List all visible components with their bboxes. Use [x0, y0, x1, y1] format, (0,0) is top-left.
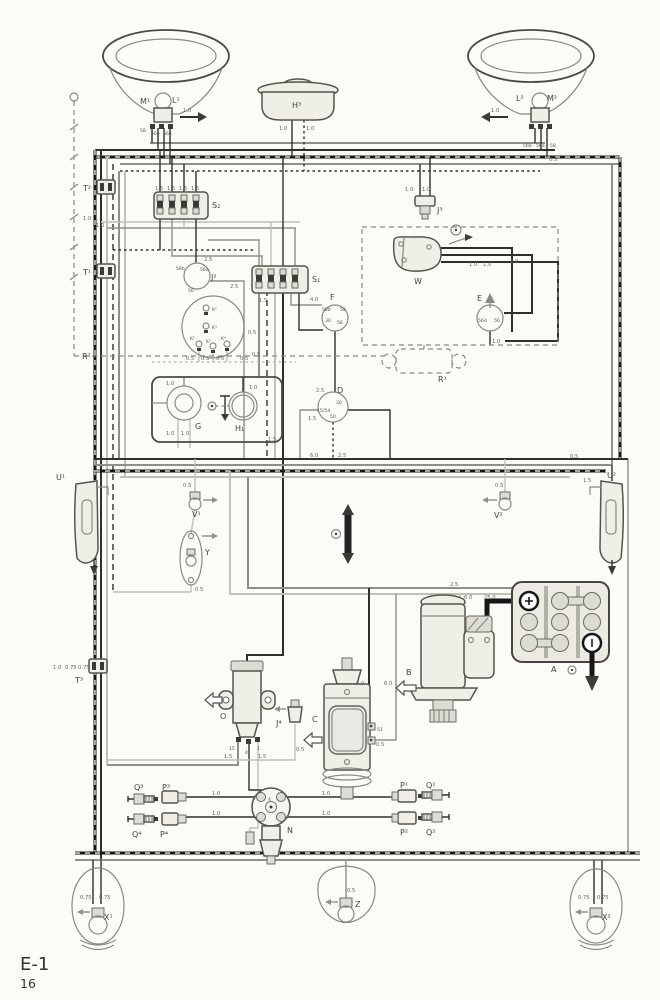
wire-gauge-label: 0.5 — [376, 742, 384, 748]
oil-pressure-sender-j4: J⁴ — [274, 700, 302, 728]
component-label: U² — [607, 471, 616, 480]
wire-gauge-label: 6.0 — [464, 595, 472, 601]
arrow-icon — [465, 234, 473, 241]
wire-gauge-label: 2.5 — [338, 453, 346, 459]
wire-gauge-label: 1.0 — [405, 187, 413, 193]
wire-gauge-label: 1.0 — [322, 791, 330, 797]
wire-gauge-label: 1.0 — [483, 262, 491, 268]
terminal-label: 58 — [340, 307, 346, 313]
terminal-label: 15 — [229, 746, 235, 752]
component-label: V¹ — [192, 510, 201, 519]
starter-b: B — [396, 595, 494, 722]
ignition-coil-o: O — [205, 661, 275, 744]
wire-gauge-label: 0.5 — [186, 356, 194, 362]
component-label: U¹ — [56, 473, 65, 482]
fuel-gauge-g: G — [152, 386, 201, 431]
antenna-r2: R² — [70, 93, 91, 361]
wire-gauge-label: 0.5 — [240, 356, 248, 362]
connector-t3: T³ — [74, 659, 107, 685]
page-number: 16 — [20, 976, 36, 991]
wire-gauge-label: 1.0 — [96, 223, 104, 229]
wire-gauge-label: 1.0 — [306, 126, 314, 132]
component-label: D — [337, 386, 343, 395]
wire-gauge-label: 6.0 — [356, 681, 364, 687]
wire-gauge-label: 1.5 — [258, 754, 266, 760]
wiper-motor-w: W — [362, 225, 558, 345]
headlight-right: L² M² — [468, 30, 594, 129]
ground-arrow-icon — [90, 566, 98, 575]
wire-gauge-label: 0.5 — [201, 356, 209, 362]
component-label: S₂ — [212, 201, 220, 210]
ground-arrow-icon — [585, 676, 599, 691]
component-label: H₁ — [235, 424, 244, 433]
tail-light-x1: X¹ — [72, 868, 124, 950]
arrow-right-icon — [212, 533, 218, 539]
wire-gauge-label: 1.5 — [268, 437, 276, 443]
wire-gauge-label: 1.0 — [491, 108, 499, 114]
terminal-label: 50 — [330, 414, 336, 420]
wire-gauge-label: 1.5 — [155, 186, 163, 192]
component-label: J³ — [436, 206, 443, 215]
component-label: P¹ — [400, 781, 408, 790]
wire-gauge-label: 0.5 — [252, 352, 260, 358]
wire-gauge-label: 0.5 — [248, 330, 256, 336]
bulb-v2: V² — [482, 492, 511, 520]
wire-gauge-label: 1.0 — [249, 385, 257, 391]
component-label: Q³ — [134, 783, 144, 792]
bulb-v1: V¹ — [189, 492, 218, 519]
wire-gauge-label: 1.0 — [422, 187, 430, 193]
wire-gauge-label: 4.0 — [310, 297, 318, 303]
dimmer-relay-j2: J² — [184, 263, 217, 289]
diagram-canvas: M¹ L¹ L² M² H³ R² R¹ T² — [0, 0, 660, 1000]
page-code: E-1 — [20, 954, 49, 975]
wire-gauge-label: 0.75 — [65, 665, 77, 671]
component-label: K² — [190, 336, 195, 342]
component-label: F — [330, 293, 335, 302]
page-label: E-1 16 — [20, 954, 49, 991]
wire-gauge-label: 1.0 — [166, 381, 174, 387]
component-label: L¹ — [172, 96, 180, 105]
wire-gauge-label: 0.5 — [195, 587, 203, 593]
component-label: K³ — [212, 325, 217, 331]
component-label: S₁ — [312, 275, 320, 284]
wire-gauge-label: 0.75 — [578, 895, 590, 901]
terminal-label: 58 — [140, 128, 146, 134]
wire-gauge-label: 0.5 — [183, 483, 191, 489]
arrow-right-icon — [212, 497, 218, 503]
wire-gauge-label: 25.0 — [484, 595, 496, 601]
component-label: X² — [602, 913, 611, 922]
wire-gauge-label: 1.0 — [166, 431, 174, 437]
sender-j3: J³ — [415, 196, 443, 219]
component-label: P⁴ — [160, 830, 168, 839]
terminal-label: 1 — [257, 746, 260, 752]
arrow-left-icon — [325, 899, 331, 905]
wire-gauge-label: 0.5 — [216, 356, 224, 362]
component-label: T¹ — [82, 268, 91, 277]
component-label: B — [406, 668, 412, 677]
battery-a: A — [512, 582, 609, 691]
connector-t2: T² — [82, 180, 115, 194]
radio-r1: R¹ — [382, 345, 466, 384]
terminal-label: 15/54 — [317, 408, 330, 414]
terminal-label: 56d — [478, 318, 487, 324]
terminal-label: 56 — [188, 288, 194, 294]
terminal-label: 51 — [377, 727, 383, 733]
component-label: M² — [547, 94, 557, 103]
component-label: P² — [400, 828, 408, 837]
connector-t1: T¹ — [82, 264, 115, 278]
component-label: Q⁴ — [132, 830, 142, 839]
component-label: V² — [494, 511, 503, 520]
terminal-label: 30 — [325, 318, 331, 324]
wire-gauge-label: 1.5 — [259, 298, 267, 304]
wire-gauge-label: 0.75 — [597, 895, 609, 901]
wire-gauge-label: 1.5 — [167, 186, 175, 192]
wire-gauge-label: 2.5 — [316, 388, 324, 394]
component-label: W — [414, 277, 422, 286]
horn-h3: H³ — [258, 79, 338, 120]
component-label: H³ — [292, 101, 301, 110]
wire-gauge-label: 1.0 — [183, 108, 191, 114]
component-label: Z — [355, 900, 361, 909]
arrow-right-icon — [198, 112, 207, 122]
terminal-label: 4 — [268, 797, 271, 803]
speedometer: K¹ K³ K² K³ K⁴ — [182, 296, 244, 358]
wire-gauge-label: 1.5 — [224, 754, 232, 760]
wiring-diagram-sheet: M¹ L¹ L² M² H³ R² R¹ T² — [0, 0, 660, 1000]
instrument-h1: H₁ — [229, 392, 257, 433]
terminal-label: 56 — [337, 320, 343, 326]
component-label: T² — [82, 184, 91, 193]
component-label: O — [220, 712, 226, 721]
component-label: L² — [516, 94, 524, 103]
terminal-label: 30 — [336, 400, 342, 406]
switch-e: E — [477, 293, 503, 331]
component-label: Q¹ — [426, 781, 436, 790]
arrow-left-icon — [575, 909, 581, 915]
component-label: C — [312, 715, 318, 724]
terminal-label: 56a — [200, 267, 209, 273]
terminal-label: 56a — [536, 143, 545, 149]
component-label: E — [477, 294, 482, 303]
wire-gauge-label: 1.0 — [212, 811, 220, 817]
tail-light-x2: X² — [570, 869, 622, 950]
wire-gauge-label: 0.75 — [99, 895, 111, 901]
lamp-y: Y — [180, 531, 218, 585]
wire-gauge-label: 0.5 — [570, 454, 578, 460]
ground-arrow-icon — [608, 566, 616, 575]
wire-gauge-label: 2.5 — [450, 582, 458, 588]
component-label: X¹ — [104, 913, 113, 922]
terminal-label: 4 — [245, 750, 248, 756]
terminal-label: 56 — [494, 318, 500, 324]
wire-gauge-label: 0.5 — [549, 157, 557, 163]
wire-gauge-label: 1.0 — [212, 791, 220, 797]
spark-plugs-left: Q³ P³ Q⁴ P⁴ — [128, 783, 186, 839]
component-label: R¹ — [438, 375, 447, 384]
terminal-label: 56b — [151, 131, 160, 137]
component-label: G — [195, 422, 201, 431]
semaphore-right-u2: U² — [590, 471, 623, 575]
wire-gauge-label: 6.0 — [384, 681, 392, 687]
component-label: K³ — [206, 339, 211, 345]
component-label: R² — [82, 352, 91, 361]
component-label: J² — [210, 273, 217, 282]
wire-gauge-label: 1.0 — [510, 259, 518, 265]
arrow-up-icon — [485, 293, 495, 303]
arrow-left-icon — [482, 497, 488, 503]
wire-gauge-label: 0.75 — [80, 895, 92, 901]
component-label: T³ — [74, 676, 83, 685]
component-label: A — [551, 665, 557, 674]
wire-gauge-label: 2.5 — [230, 284, 238, 290]
component-label: J⁴ — [275, 719, 282, 728]
terminal-label: 56a — [163, 131, 172, 137]
wire-gauge-label: 1.5 — [308, 416, 316, 422]
wire-gauge-label: 1.0 — [492, 339, 500, 345]
wire-gauge-label: 1.0 — [53, 665, 61, 671]
wire-gauge-label: 0.5 — [296, 747, 304, 753]
wire-gauge-label: 1.0 — [279, 126, 287, 132]
wire-gauge-label: 1.0 — [181, 431, 189, 437]
wire-gauge-label: 2.5 — [204, 257, 212, 263]
terminal-label: 58b — [322, 307, 331, 313]
wire-gauge-label: 1.0 — [322, 811, 330, 817]
wire-gauge-label: 0.5 — [495, 483, 503, 489]
ground-symbol — [208, 396, 230, 421]
component-label: M¹ — [140, 97, 150, 106]
wiring-harness — [70, 101, 640, 904]
wire-gauge-label: 1.5 — [191, 186, 199, 192]
wire-gauge-label: 1.5 — [179, 186, 187, 192]
component-label: K¹ — [212, 307, 217, 313]
wire-gauge-label: 1.5 — [583, 478, 591, 484]
wire-gauge-label: 1.0 — [469, 262, 477, 268]
arrow-left-icon — [274, 706, 280, 712]
wire-gauge-label: 0.5 — [347, 888, 355, 894]
fuse-box-s1: S₁ — [252, 266, 320, 293]
terminal-label: 58 — [550, 143, 556, 149]
component-label: Q² — [426, 828, 436, 837]
wire-gauge-label: 1.0 — [83, 216, 91, 222]
arrow-left-icon — [481, 112, 490, 122]
cable-bundle-arrow — [332, 504, 355, 564]
generator-c: C — [304, 658, 375, 799]
component-label: N — [287, 826, 293, 835]
spark-plugs-right: P¹ Q¹ P² Q² — [392, 781, 449, 837]
headlight-left: M¹ L¹ — [103, 30, 229, 129]
terminal-label: 56b — [523, 143, 532, 149]
fuse-box-s2: S₂ — [154, 192, 220, 219]
terminal-label: 56b — [176, 266, 185, 272]
component-label: P³ — [162, 783, 170, 792]
arrow-left-icon — [304, 733, 322, 747]
arrow-left-icon — [77, 909, 83, 915]
component-label: Y — [204, 548, 210, 557]
wire-gauge-label: 0.75 — [78, 665, 90, 671]
wire-gauge-label: 6.0 — [310, 453, 318, 459]
component-label: K⁴ — [221, 336, 226, 342]
